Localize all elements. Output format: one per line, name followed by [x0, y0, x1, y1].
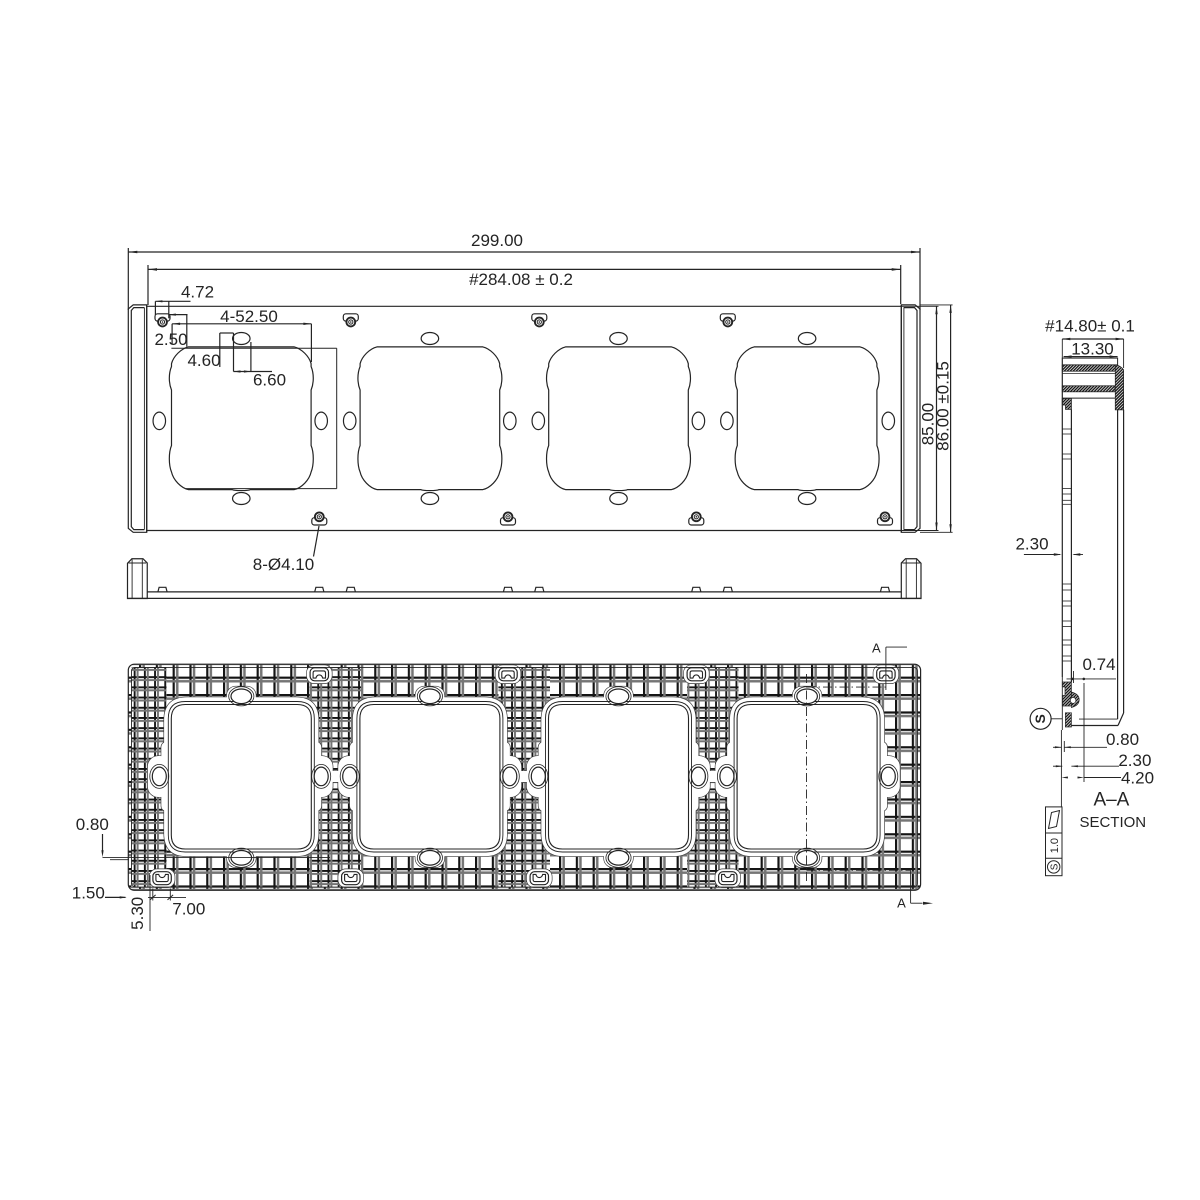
- svg-text:#14.80± 0.1: #14.80± 0.1: [1045, 317, 1135, 336]
- svg-text:4.72: 4.72: [181, 283, 214, 302]
- svg-text:2.30: 2.30: [1015, 535, 1048, 554]
- svg-text:4-52.50: 4-52.50: [220, 307, 278, 326]
- svg-text:A–A: A–A: [1093, 789, 1129, 810]
- svg-text:0.80: 0.80: [76, 815, 109, 834]
- svg-text:1.0: 1.0: [1049, 838, 1061, 853]
- svg-text:S: S: [1032, 714, 1048, 723]
- svg-text:8-Ø4.10: 8-Ø4.10: [253, 555, 314, 574]
- svg-text:2.30: 2.30: [1118, 751, 1151, 770]
- svg-text:0.80: 0.80: [1106, 730, 1139, 749]
- svg-text:5.30: 5.30: [128, 897, 147, 930]
- svg-text:4.60: 4.60: [187, 351, 220, 370]
- svg-text:A: A: [897, 896, 906, 911]
- svg-text:86.00 ±0.15: 86.00 ±0.15: [934, 361, 953, 451]
- svg-text:A: A: [872, 640, 881, 655]
- svg-text:0.74: 0.74: [1082, 655, 1115, 674]
- svg-text:4.20: 4.20: [1121, 769, 1154, 788]
- svg-text:13.30: 13.30: [1071, 339, 1114, 358]
- svg-text:SECTION: SECTION: [1079, 814, 1146, 831]
- svg-text:1.50: 1.50: [72, 884, 105, 903]
- svg-text:6.60: 6.60: [253, 371, 286, 390]
- svg-text:2.50: 2.50: [154, 330, 187, 349]
- svg-text:S: S: [1050, 863, 1061, 870]
- svg-text:299.00: 299.00: [471, 231, 523, 250]
- svg-text:#284.08 ± 0.2: #284.08 ± 0.2: [469, 270, 573, 289]
- svg-text:7.00: 7.00: [172, 900, 205, 919]
